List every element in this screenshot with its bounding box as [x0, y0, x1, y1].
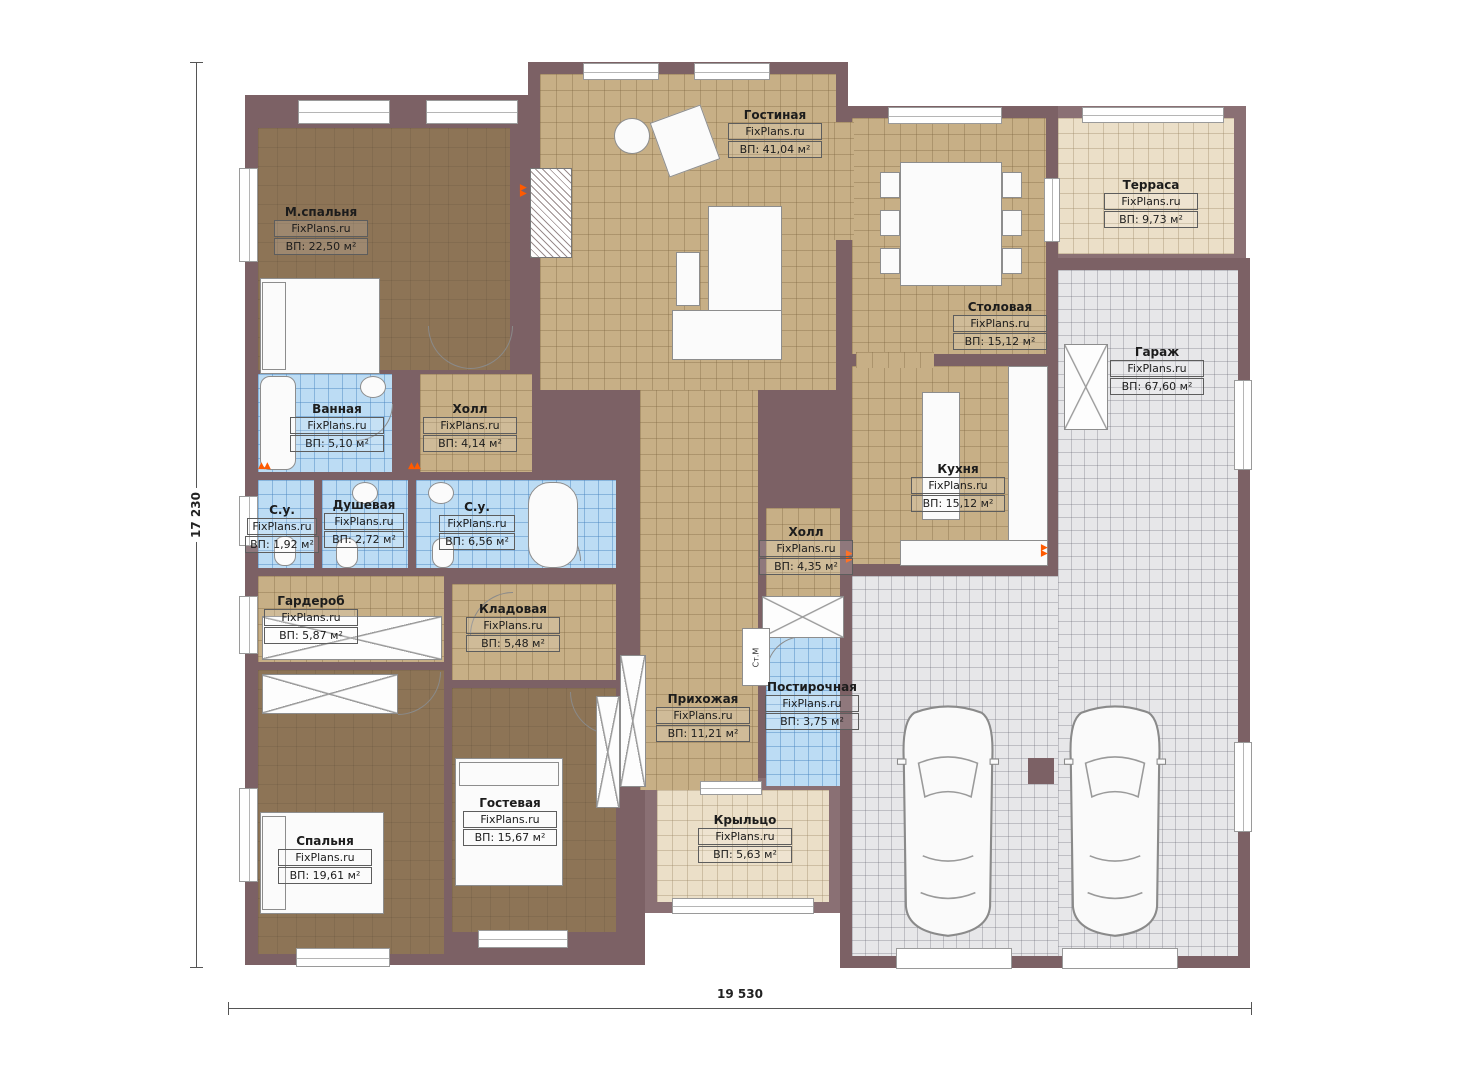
watermark: FixPlans.ru	[759, 540, 853, 557]
room-label-entry: Прихожая FixPlans.ru ВП: 11,21 м²	[643, 692, 763, 742]
door-dining-terrace	[1044, 178, 1060, 242]
room-area: ВП: 4,35 м²	[759, 558, 853, 575]
window-bedroom-left	[239, 788, 258, 882]
car-2	[1062, 698, 1168, 940]
porch-steps	[672, 898, 814, 914]
dimension-tick-h-right	[1251, 1002, 1252, 1015]
dining-chair-5	[1002, 210, 1022, 236]
dining-chair-1	[880, 172, 900, 198]
room-area: ВП: 22,50 м²	[274, 238, 368, 255]
room-name: Гараж	[1097, 345, 1217, 359]
window-bedroom-bottom	[296, 948, 390, 967]
watermark: FixPlans.ru	[466, 617, 560, 634]
watermark: FixPlans.ru	[463, 811, 557, 828]
room-label-wc-2: С.у. FixPlans.ru ВП: 6,56 м²	[417, 500, 537, 550]
room-area: ВП: 41,04 м²	[728, 141, 822, 158]
room-area: ВП: 67,60 м²	[1110, 378, 1204, 395]
porch-entrance-door	[700, 781, 762, 795]
dimension-line-horizontal	[228, 1008, 1252, 1009]
room-name: Гардероб	[251, 594, 371, 608]
room-name: С.у.	[417, 500, 537, 514]
window-master-top-2	[426, 100, 518, 124]
room-name: Прихожая	[643, 692, 763, 706]
watermark: FixPlans.ru	[423, 417, 517, 434]
room-label-master-bedroom: М.спальня FixPlans.ru ВП: 22,50 м²	[261, 205, 381, 255]
room-area: ВП: 3,75 м²	[765, 713, 859, 730]
room-label-bathroom: Ванная FixPlans.ru ВП: 5,10 м²	[277, 402, 397, 452]
room-area: ВП: 15,67 м²	[463, 829, 557, 846]
room-label-dining: Столовая FixPlans.ru ВП: 15,12 м²	[940, 300, 1060, 350]
dining-table	[900, 162, 1002, 286]
room-name: Гостевая	[450, 796, 570, 810]
room-label-shower: Душевая FixPlans.ru ВП: 2,72 м²	[304, 498, 424, 548]
room-name: Терраса	[1091, 178, 1211, 192]
room-area: ВП: 11,21 м²	[656, 725, 750, 742]
room-area: ВП: 5,10 м²	[290, 435, 384, 452]
laundry-shelf	[762, 596, 844, 638]
radiator-icon-kitchen: ▲▲	[1040, 544, 1048, 556]
fireplace	[530, 168, 572, 258]
room-area: ВП: 5,63 м²	[698, 846, 792, 863]
radiator-icon-bathroom: ▲▲	[258, 462, 270, 470]
room-area: ВП: 15,12 м²	[911, 495, 1005, 512]
kitchen-lower-counter	[900, 540, 1048, 566]
floor-plan: Ст.М ▲▲ ▲▲ ▲▲ ▲▲ ▲▲ Гостиная FixPlans.ru…	[0, 0, 1474, 1080]
room-name: Холл	[410, 402, 530, 416]
dimension-tick-v-bottom	[190, 967, 203, 968]
dimension-width-label: 19 530	[713, 987, 767, 1001]
room-label-hall-2: Холл FixPlans.ru ВП: 4,35 м²	[746, 525, 866, 575]
sofa-chaise	[672, 310, 782, 360]
room-name: Гостиная	[715, 108, 835, 122]
watermark: FixPlans.ru	[324, 513, 404, 530]
room-area: ВП: 15,12 м²	[953, 333, 1047, 350]
room-label-porch: Крыльцо FixPlans.ru ВП: 5,63 м²	[685, 813, 805, 863]
room-label-hall-1: Холл FixPlans.ru ВП: 4,14 м²	[410, 402, 530, 452]
room-name: Спальня	[265, 834, 385, 848]
bedroom-closet	[262, 674, 398, 714]
room-name: М.спальня	[261, 205, 381, 219]
room-label-bedroom: Спальня FixPlans.ru ВП: 19,61 м²	[265, 834, 385, 884]
watermark: FixPlans.ru	[290, 417, 384, 434]
radiator-icon-living: ▲▲	[519, 184, 527, 196]
guest-closet	[596, 696, 620, 808]
watermark: FixPlans.ru	[698, 828, 792, 845]
room-label-kitchen: Кухня FixPlans.ru ВП: 15,12 м²	[898, 462, 1018, 512]
garage-column	[1028, 758, 1054, 784]
dimension-tick-v-top	[190, 62, 203, 63]
room-label-terrace: Терраса FixPlans.ru ВП: 9,73 м²	[1091, 178, 1211, 228]
watermark: FixPlans.ru	[264, 609, 358, 626]
dimension-height-label: 17 230	[189, 488, 203, 542]
window-dining-top	[888, 107, 1002, 124]
watermark: FixPlans.ru	[1110, 360, 1204, 377]
watermark: FixPlans.ru	[1104, 193, 1198, 210]
room-area: ВП: 5,48 м²	[466, 635, 560, 652]
bed-master-pillow	[262, 282, 286, 370]
watermark: FixPlans.ru	[911, 477, 1005, 494]
car-1	[895, 698, 1001, 940]
room-name: Кладовая	[453, 602, 573, 616]
room-name: Холл	[746, 525, 866, 539]
room-area: ВП: 9,73 м²	[1104, 211, 1198, 228]
room-area: ВП: 6,56 м²	[439, 533, 515, 550]
room-name: Душевая	[304, 498, 424, 512]
window-garage-right-1	[1234, 380, 1252, 470]
sink-bathroom	[360, 376, 386, 398]
room-label-garage: Гараж FixPlans.ru ВП: 67,60 м²	[1097, 345, 1217, 395]
bed-guest-pillow	[459, 762, 559, 786]
tv-stand	[676, 252, 700, 306]
dining-chair-3	[880, 248, 900, 274]
window-living-top-2	[694, 63, 770, 80]
window-guest-bottom	[478, 930, 568, 948]
window-master-top-1	[298, 100, 390, 124]
room-name: Столовая	[940, 300, 1060, 314]
room-name: Ванная	[277, 402, 397, 416]
room-label-laundry: Постирочная FixPlans.ru ВП: 3,75 м²	[752, 680, 872, 730]
watermark: FixPlans.ru	[728, 123, 822, 140]
garage-door-1	[896, 948, 1012, 969]
room-area: ВП: 19,61 м²	[278, 867, 372, 884]
room-name: Постирочная	[752, 680, 872, 694]
dimension-tick-h-left	[228, 1002, 229, 1015]
opening-dining-kitchen	[856, 352, 934, 368]
dining-chair-6	[1002, 248, 1022, 274]
room-area: ВП: 5,87 м²	[264, 627, 358, 644]
room-area: ВП: 4,14 м²	[423, 435, 517, 452]
garage-door-2	[1062, 948, 1178, 969]
watermark: FixPlans.ru	[953, 315, 1047, 332]
window-living-top-1	[583, 63, 659, 80]
dining-chair-2	[880, 210, 900, 236]
room-label-guest: Гостевая FixPlans.ru ВП: 15,67 м²	[450, 796, 570, 846]
window-garage-right-2	[1234, 742, 1252, 832]
radiator-icon-shower: ▲▲	[408, 462, 420, 470]
watermark: FixPlans.ru	[278, 849, 372, 866]
washing-machine-label: Ст.М	[751, 647, 760, 667]
room-label-storage: Кладовая FixPlans.ru ВП: 5,48 м²	[453, 602, 573, 652]
room-label-living: Гостиная FixPlans.ru ВП: 41,04 м²	[715, 108, 835, 158]
watermark: FixPlans.ru	[274, 220, 368, 237]
watermark: FixPlans.ru	[656, 707, 750, 724]
dining-chair-4	[1002, 172, 1022, 198]
watermark: FixPlans.ru	[765, 695, 859, 712]
room-area: ВП: 2,72 м²	[324, 531, 404, 548]
round-table	[614, 118, 650, 154]
watermark: FixPlans.ru	[439, 515, 515, 532]
room-label-wardrobe: Гардероб FixPlans.ru ВП: 5,87 м²	[251, 594, 371, 644]
room-name: Кухня	[898, 462, 1018, 476]
window-terrace-top	[1082, 107, 1224, 123]
window-master-left	[239, 168, 258, 262]
opening-living-dining	[834, 122, 854, 240]
washing-machine: Ст.М	[742, 628, 770, 686]
room-name: Крыльцо	[685, 813, 805, 827]
